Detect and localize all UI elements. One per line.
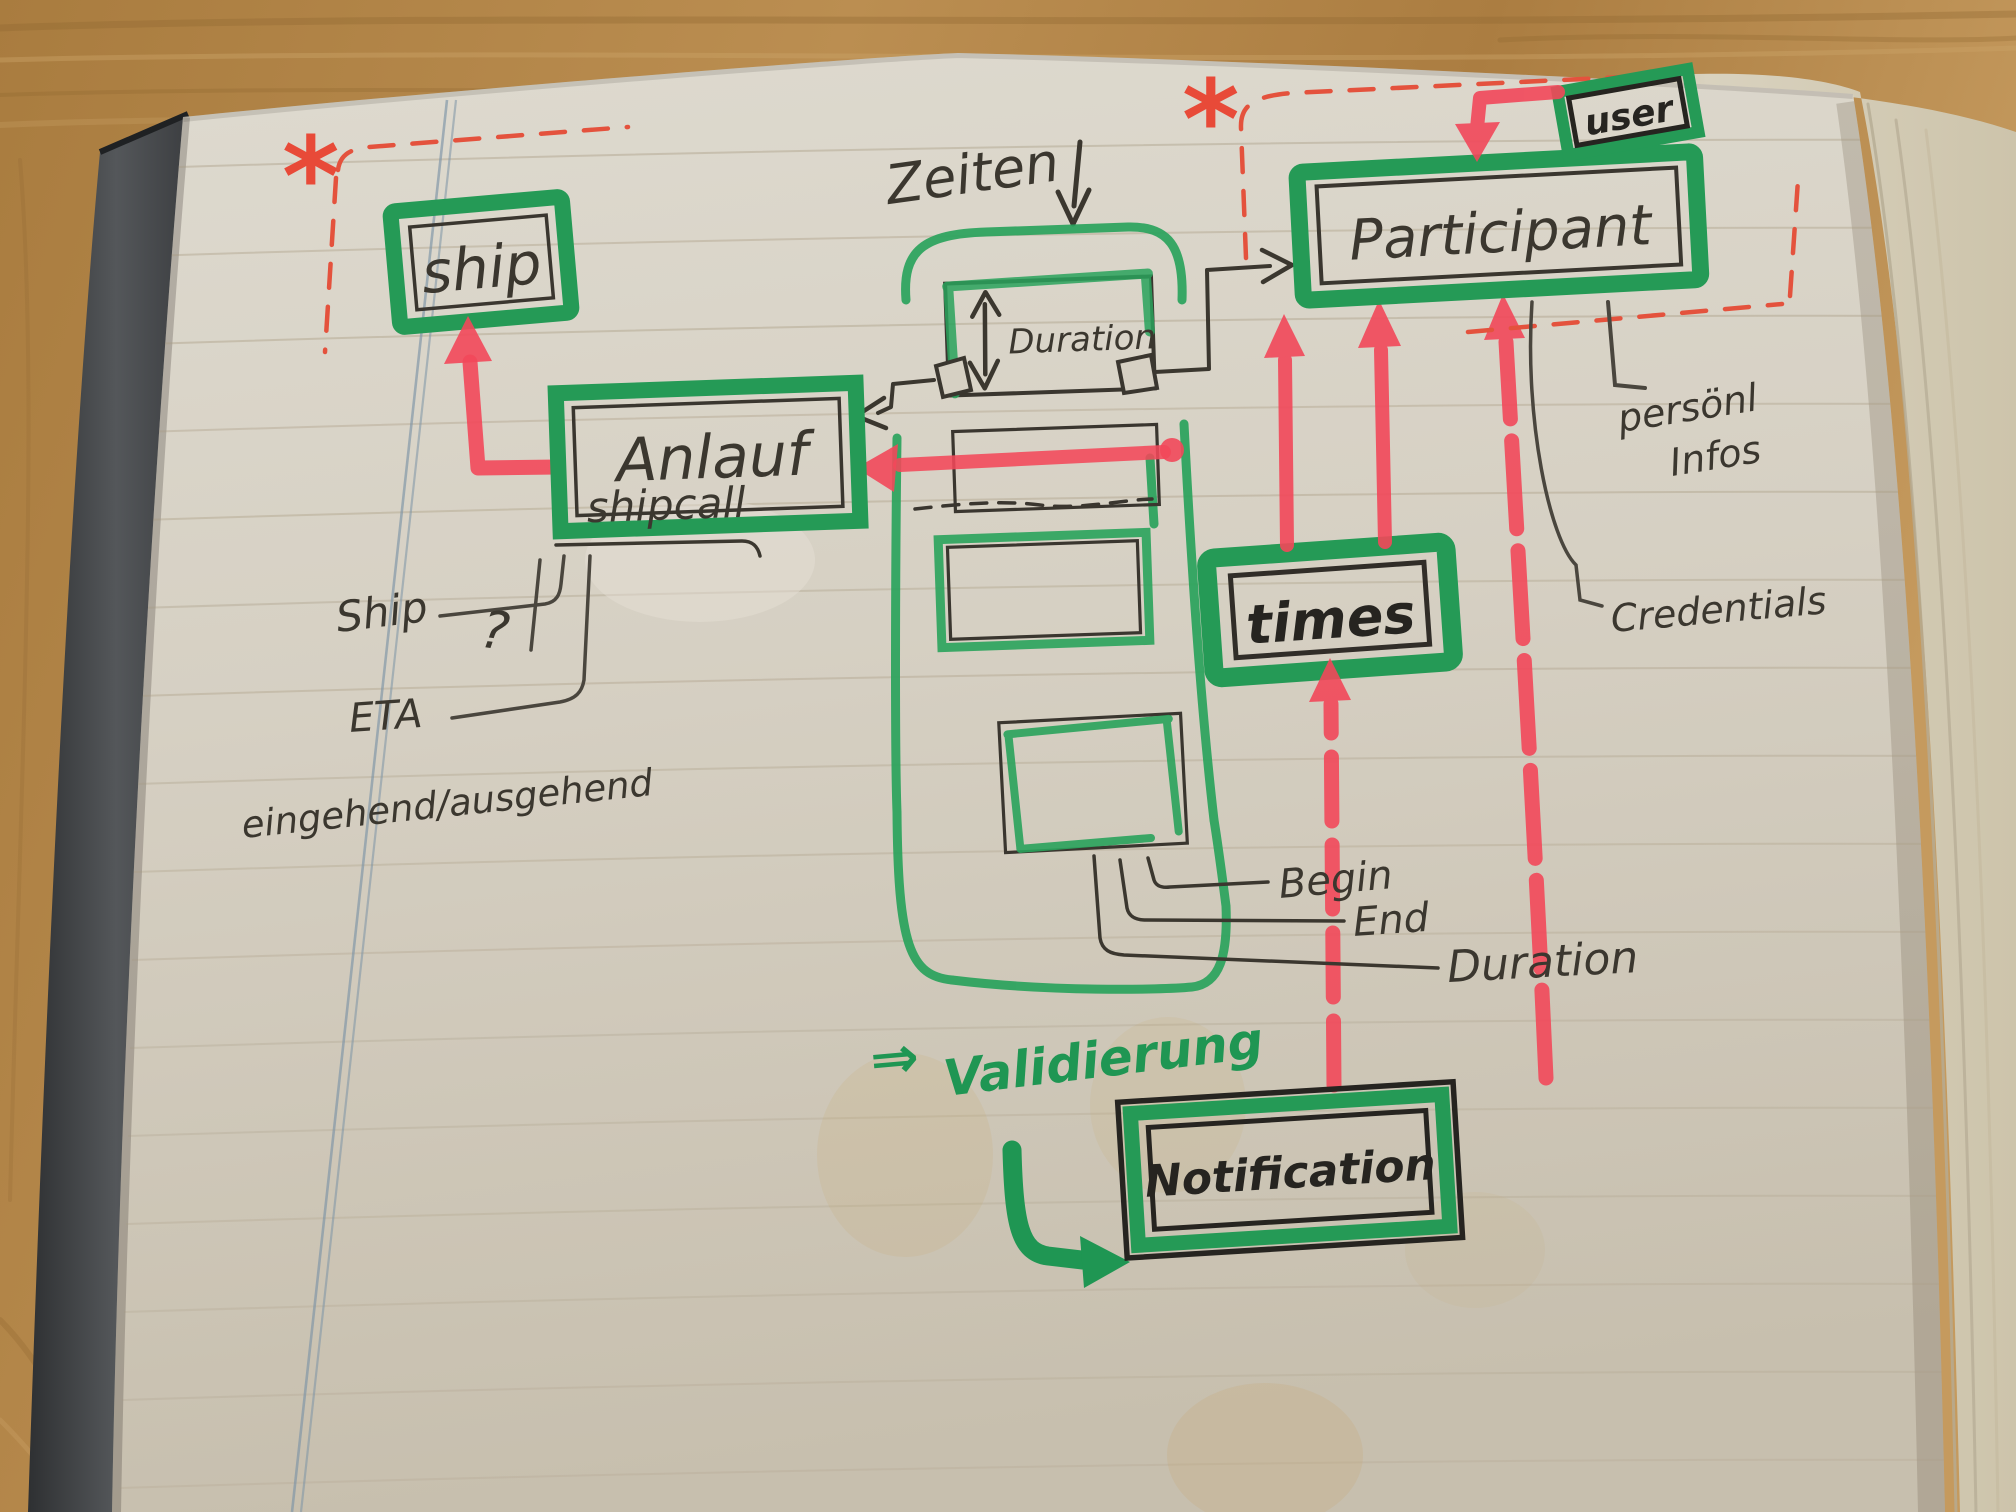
validierung-arrow-icon: ⇒ (867, 1022, 921, 1094)
duration-box-label: Duration (1008, 317, 1157, 362)
anlauf-sublabel: shipcall (586, 478, 747, 533)
end-attribute-label: End (1351, 895, 1431, 946)
duration-attribute-label: Duration (1446, 932, 1640, 993)
ship-label: ship (419, 229, 544, 307)
notebook-photo: * ship Zeiten Duratio (0, 0, 2016, 1512)
sketch-scene: * ship Zeiten Duratio (0, 0, 2016, 1512)
duration-diamond-right (1118, 355, 1157, 393)
eta-attribute-label: ETA (347, 691, 423, 742)
participant-asterisk: * (1182, 56, 1240, 184)
times-label: times (1244, 582, 1417, 657)
duration-diamond-left (936, 358, 971, 397)
ship-asterisk: * (282, 113, 340, 241)
